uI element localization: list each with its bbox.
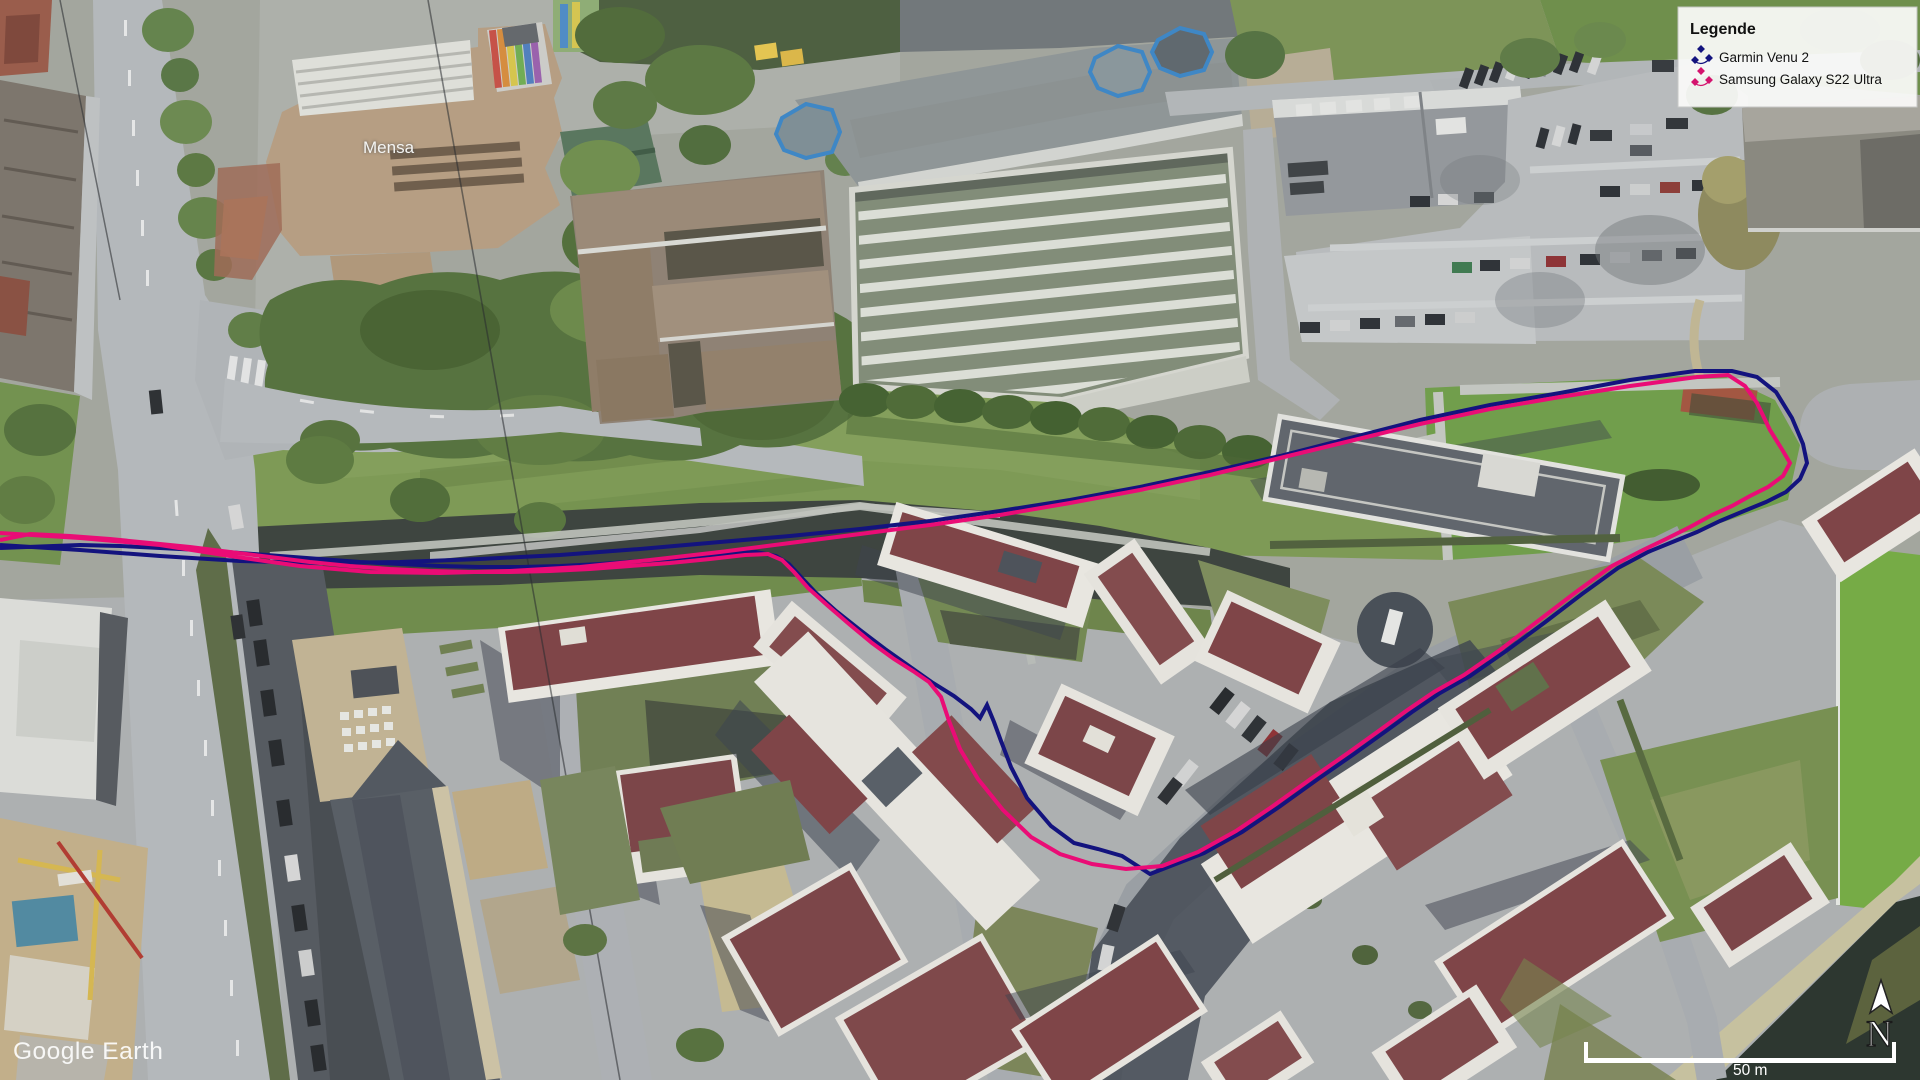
svg-text:N: N	[1866, 1014, 1893, 1055]
svg-text:Samsung Galaxy S22 Ultra: Samsung Galaxy S22 Ultra	[1719, 72, 1882, 87]
svg-text:Legende: Legende	[1690, 21, 1756, 38]
svg-text:Mensa: Mensa	[363, 138, 415, 157]
svg-text:50 m: 50 m	[1733, 1062, 1767, 1079]
svg-text:Google Earth: Google Earth	[13, 1038, 163, 1065]
svg-text:Garmin Venu 2: Garmin Venu 2	[1719, 50, 1809, 65]
